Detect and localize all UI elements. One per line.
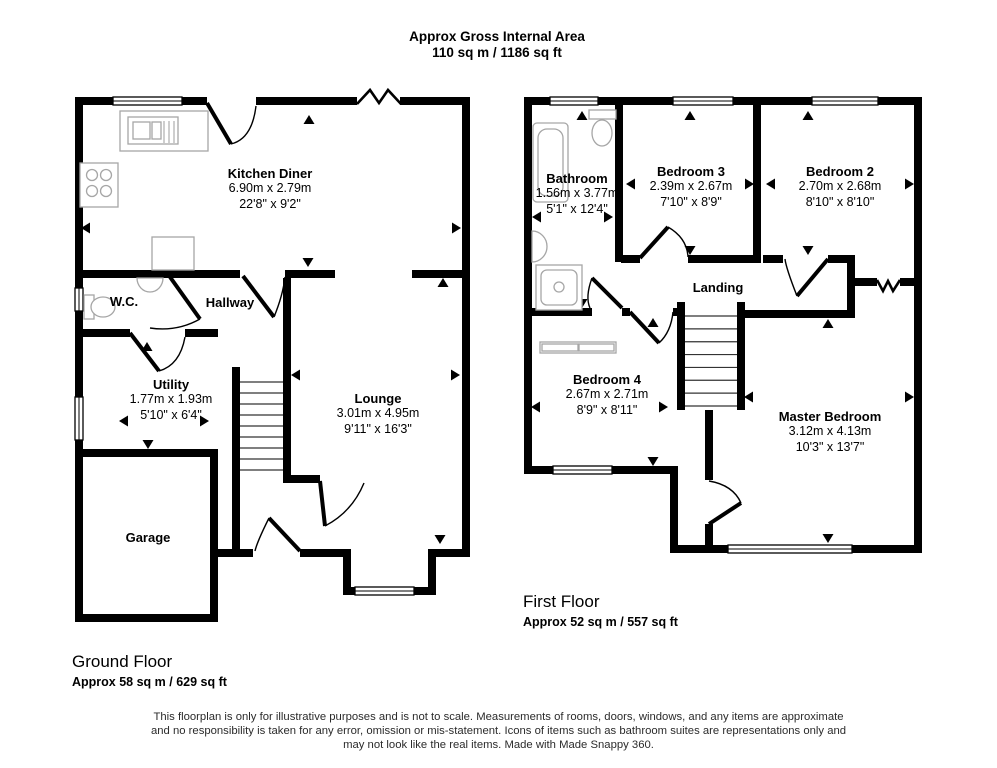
wall bbox=[745, 310, 847, 318]
door-leaf bbox=[640, 227, 668, 258]
door-leaf bbox=[797, 259, 828, 296]
wall bbox=[733, 97, 812, 105]
wall bbox=[914, 97, 922, 553]
wall bbox=[283, 475, 320, 483]
hob-burner-icon bbox=[101, 170, 112, 181]
room-label-garage: Garage bbox=[126, 530, 171, 545]
room-name: Bedroom 4 bbox=[566, 372, 649, 387]
room-metric-dims: 2.67m x 2.71m bbox=[566, 387, 649, 403]
door-swing-arc bbox=[150, 319, 200, 329]
wall bbox=[763, 255, 783, 263]
door-leaf bbox=[320, 481, 325, 526]
measure-arrow bbox=[291, 370, 300, 381]
wardrobe-door-icon bbox=[542, 344, 578, 351]
disclaimer-line3: may not look like the real items. Made w… bbox=[0, 738, 997, 752]
hob-burner-icon bbox=[87, 186, 98, 197]
wall bbox=[182, 97, 207, 105]
wall bbox=[705, 524, 713, 553]
measure-arrow bbox=[823, 319, 834, 328]
wall-break-icon bbox=[357, 90, 401, 104]
measure-arrow bbox=[304, 115, 315, 124]
room-label-wc: W.C. bbox=[110, 294, 138, 309]
wall bbox=[847, 255, 855, 318]
door-swing-arc bbox=[231, 106, 256, 144]
measure-arrow bbox=[626, 179, 635, 190]
measure-arrow bbox=[803, 111, 814, 120]
room-imperial-dims: 9'11" x 16'3" bbox=[337, 422, 420, 438]
wall bbox=[300, 549, 345, 557]
room-metric-dims: 1.77m x 1.93m bbox=[130, 392, 213, 408]
door-swing-arc bbox=[668, 227, 688, 257]
measure-arrow bbox=[577, 111, 588, 120]
measure-arrow bbox=[766, 179, 775, 190]
wall bbox=[673, 308, 685, 316]
room-label-bedroom-4: Bedroom 4 2.67m x 2.71m 8'9" x 8'11" bbox=[566, 372, 649, 418]
room-label-landing: Landing bbox=[693, 280, 744, 295]
room-name: Bedroom 3 bbox=[650, 164, 733, 179]
door-leaf bbox=[630, 312, 659, 343]
wall bbox=[524, 466, 553, 474]
measure-arrow bbox=[745, 179, 754, 190]
kitchen-counter-icon bbox=[152, 237, 194, 270]
wall bbox=[400, 97, 470, 105]
room-label-master-bedroom: Master Bedroom 3.12m x 4.13m 10'3" x 13'… bbox=[779, 409, 882, 455]
gross-area-title-line2: 110 sq m / 1186 sq ft bbox=[409, 45, 585, 61]
wall bbox=[75, 270, 240, 278]
wall bbox=[285, 270, 335, 278]
room-imperial-dims: 5'1" x 12'4" bbox=[536, 202, 619, 218]
room-metric-dims: 2.70m x 2.68m bbox=[799, 179, 882, 195]
door-swing-arc bbox=[709, 481, 741, 503]
room-imperial-dims: 10'3" x 13'7" bbox=[779, 440, 882, 456]
room-name: Hallway bbox=[206, 295, 254, 310]
wall bbox=[283, 278, 291, 477]
wall bbox=[75, 311, 83, 397]
gross-area-title: Approx Gross Internal Area 110 sq m / 11… bbox=[409, 29, 585, 61]
measure-arrow bbox=[452, 223, 461, 234]
wall bbox=[688, 255, 753, 263]
wall bbox=[621, 255, 640, 263]
toilet-bowl-icon bbox=[592, 120, 612, 146]
ground-floor-area: Approx 58 sq m / 629 sq ft bbox=[72, 675, 227, 689]
room-label-bedroom-3: Bedroom 3 2.39m x 2.67m 7'10" x 8'9" bbox=[650, 164, 733, 210]
first-floor-heading: First Floor bbox=[523, 592, 600, 612]
room-name: Kitchen Diner bbox=[228, 166, 313, 181]
wall bbox=[75, 449, 218, 457]
wall bbox=[737, 302, 745, 410]
wall bbox=[218, 549, 253, 557]
room-metric-dims: 3.01m x 4.95m bbox=[337, 406, 420, 422]
measure-arrow bbox=[659, 402, 668, 413]
measure-arrow bbox=[744, 392, 753, 403]
wash-basin-icon bbox=[137, 278, 163, 292]
wall bbox=[598, 97, 673, 105]
room-name: Landing bbox=[693, 280, 744, 295]
wall bbox=[75, 440, 83, 622]
wall bbox=[705, 410, 713, 480]
door-leaf bbox=[170, 277, 200, 319]
room-name: Garage bbox=[126, 530, 171, 545]
gross-area-title-line1: Approx Gross Internal Area bbox=[409, 29, 585, 45]
shower-drain-icon bbox=[554, 282, 564, 292]
room-metric-dims: 3.12m x 4.13m bbox=[779, 424, 882, 440]
measure-arrow bbox=[303, 258, 314, 267]
measure-arrow bbox=[648, 457, 659, 466]
wardrobe-door-icon bbox=[579, 344, 614, 351]
room-metric-dims: 1.56m x 3.77m bbox=[536, 186, 619, 202]
floorplan-page: { "title": { "line1": "Approx Gross Inte… bbox=[0, 0, 997, 768]
door-leaf bbox=[709, 503, 741, 524]
measure-arrow bbox=[438, 278, 449, 287]
door-swing-arc bbox=[785, 259, 797, 296]
room-name: Utility bbox=[130, 377, 213, 392]
kitchen-counter-icon bbox=[80, 163, 118, 207]
disclaimer-line2: and no responsibility is taken for any e… bbox=[0, 724, 997, 738]
hob-burner-icon bbox=[101, 186, 112, 197]
wall-break-icon bbox=[877, 280, 900, 291]
door-leaf bbox=[130, 333, 159, 371]
measure-arrow bbox=[823, 534, 834, 543]
room-name: W.C. bbox=[110, 294, 138, 309]
room-imperial-dims: 5'10" x 6'4" bbox=[130, 408, 213, 424]
wall bbox=[524, 97, 532, 474]
wash-basin-icon bbox=[532, 231, 547, 262]
room-metric-dims: 2.39m x 2.67m bbox=[650, 179, 733, 195]
wall bbox=[232, 367, 240, 549]
room-label-bathroom: Bathroom 1.56m x 3.77m 5'1" x 12'4" bbox=[536, 171, 619, 217]
wall bbox=[185, 329, 218, 337]
wall bbox=[256, 97, 357, 105]
room-name: Bedroom 2 bbox=[799, 164, 882, 179]
room-imperial-dims: 8'9" x 8'11" bbox=[566, 403, 649, 419]
room-name: Master Bedroom bbox=[779, 409, 882, 424]
wall bbox=[852, 545, 922, 553]
wall bbox=[900, 278, 914, 286]
wall bbox=[462, 97, 470, 557]
room-label-utility: Utility 1.77m x 1.93m 5'10" x 6'4" bbox=[130, 377, 213, 423]
measure-arrow bbox=[119, 416, 128, 427]
room-label-hallway: Hallway bbox=[206, 295, 254, 310]
door-swing-arc bbox=[588, 278, 592, 308]
wall bbox=[412, 270, 470, 278]
wall bbox=[612, 466, 675, 474]
measure-arrow bbox=[142, 342, 153, 351]
measure-arrow bbox=[451, 370, 460, 381]
door-swing-arc bbox=[659, 312, 673, 343]
hob-burner-icon bbox=[87, 170, 98, 181]
wall bbox=[414, 587, 436, 595]
room-name: Lounge bbox=[337, 391, 420, 406]
sink-bowl-icon bbox=[133, 122, 150, 139]
first-floor-area: Approx 52 sq m / 557 sq ft bbox=[523, 615, 678, 629]
room-imperial-dims: 8'10" x 8'10" bbox=[799, 195, 882, 211]
wall bbox=[75, 614, 218, 622]
wall bbox=[855, 278, 877, 286]
door-swing-arc bbox=[255, 518, 269, 551]
wall bbox=[75, 329, 130, 337]
measure-arrow bbox=[648, 318, 659, 327]
room-label-bedroom-2: Bedroom 2 2.70m x 2.68m 8'10" x 8'10" bbox=[799, 164, 882, 210]
door-leaf bbox=[269, 518, 300, 551]
wall bbox=[670, 545, 728, 553]
door-leaf bbox=[592, 278, 622, 308]
disclaimer-line1: This floorplan is only for illustrative … bbox=[0, 710, 997, 724]
room-metric-dims: 6.90m x 2.79m bbox=[228, 181, 313, 197]
room-label-kitchen-diner: Kitchen Diner 6.90m x 2.79m 22'8" x 9'2" bbox=[228, 166, 313, 212]
door-leaf bbox=[207, 103, 231, 144]
wall bbox=[622, 308, 630, 316]
ground-floor-heading: Ground Floor bbox=[72, 652, 172, 672]
toilet-cistern-icon bbox=[589, 110, 616, 119]
room-name: Bathroom bbox=[536, 171, 619, 186]
room-label-lounge: Lounge 3.01m x 4.95m 9'11" x 16'3" bbox=[337, 391, 420, 437]
measure-arrow bbox=[531, 402, 540, 413]
wall bbox=[670, 466, 678, 553]
sink-bowl-icon bbox=[152, 122, 161, 139]
wall bbox=[210, 449, 218, 622]
room-imperial-dims: 7'10" x 8'9" bbox=[650, 195, 733, 211]
measure-arrow bbox=[905, 392, 914, 403]
measure-arrow bbox=[143, 440, 154, 449]
measure-arrow bbox=[905, 179, 914, 190]
measure-arrow bbox=[435, 535, 446, 544]
disclaimer-text: This floorplan is only for illustrative … bbox=[0, 710, 997, 752]
door-swing-arc bbox=[325, 483, 364, 526]
room-imperial-dims: 22'8" x 9'2" bbox=[228, 197, 313, 213]
measure-arrow bbox=[685, 111, 696, 120]
measure-arrow bbox=[803, 246, 814, 255]
measure-arrow bbox=[685, 246, 696, 255]
wall bbox=[677, 302, 685, 410]
wall bbox=[753, 97, 761, 263]
door-swing-arc bbox=[159, 337, 185, 371]
